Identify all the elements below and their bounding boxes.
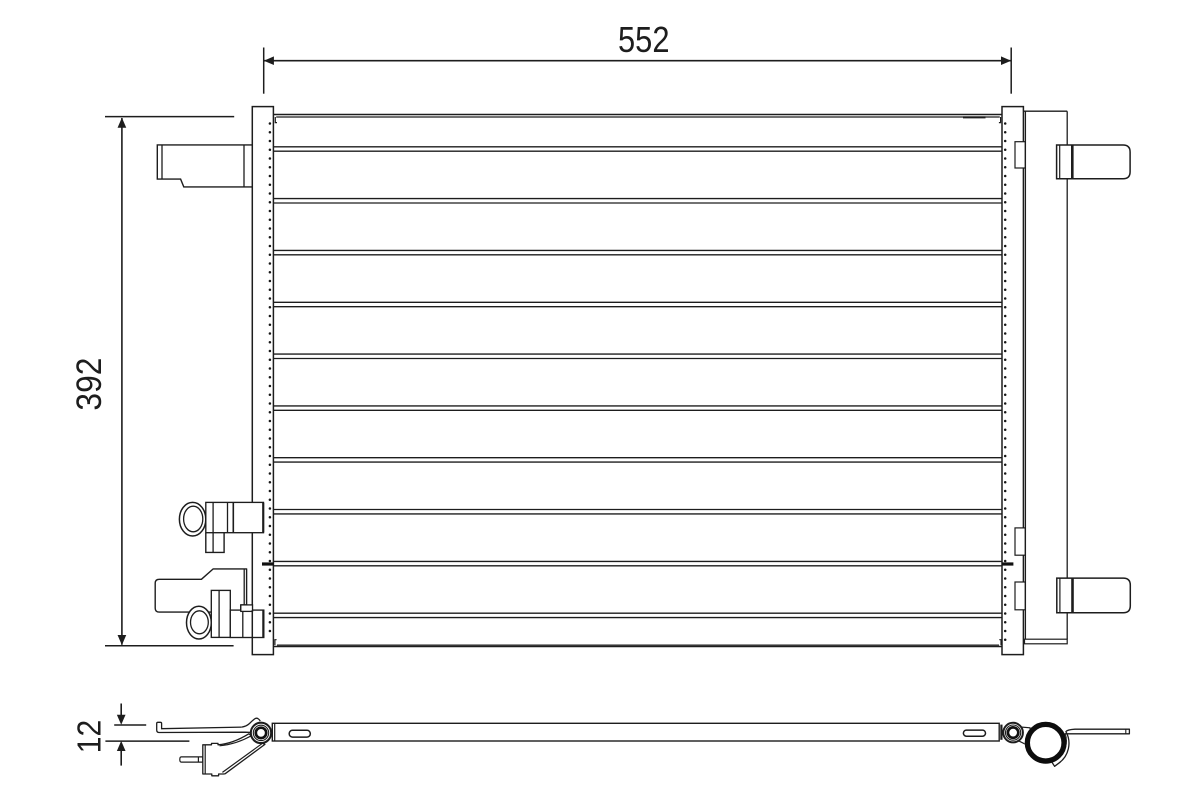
svg-text:392: 392 <box>70 358 109 411</box>
svg-text:12: 12 <box>71 720 108 754</box>
svg-text:552: 552 <box>618 19 670 60</box>
